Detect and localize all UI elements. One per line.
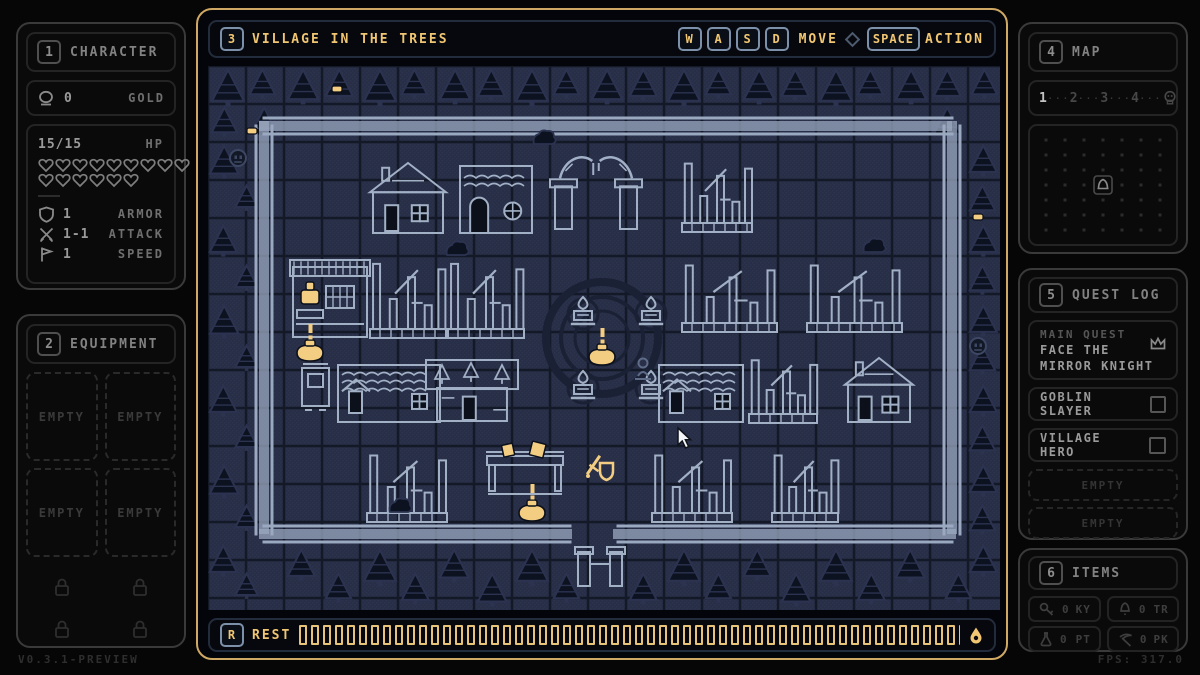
minimap-dot <box>1121 214 1124 217</box>
rest-segment <box>419 625 427 645</box>
main-quest-card[interactable]: MAIN QUEST FACE THE MIRROR KNIGHT <box>1028 320 1178 380</box>
divider <box>38 195 60 197</box>
skull-icon <box>1162 90 1178 106</box>
map-hotkey-badge: 4 <box>1039 40 1063 64</box>
quest-log-title: QUEST LOG <box>1072 288 1160 303</box>
equipment-header: 2 EQUIPMENT <box>26 324 176 364</box>
level-hotkey-badge: 3 <box>220 27 244 51</box>
heart-icon <box>38 158 54 173</box>
minimap-dot <box>1102 199 1105 202</box>
quest-checkbox[interactable] <box>1150 396 1166 413</box>
move-label: MOVE <box>799 32 838 47</box>
crown-icon <box>1149 336 1167 351</box>
minimap-dot <box>1102 138 1105 141</box>
quest-empty-slot: EMPTY <box>1028 469 1178 501</box>
rest-key[interactable]: R <box>220 623 244 647</box>
quest-empty-slot: EMPTY <box>1028 507 1178 539</box>
pickaxe-icon <box>1117 631 1134 648</box>
rest-segment <box>515 625 523 645</box>
move-key-w[interactable]: W <box>678 27 702 51</box>
swords-icon <box>38 226 55 243</box>
action-label: ACTION <box>925 32 984 47</box>
rest-segment <box>767 625 775 645</box>
heart-icon <box>174 158 190 173</box>
rest-segment <box>599 625 607 645</box>
minimap-dot <box>1121 184 1124 187</box>
rest-segment <box>743 625 751 645</box>
minimap-dot <box>1044 168 1047 171</box>
rest-segment <box>467 625 475 645</box>
minimap-dot <box>1159 214 1162 217</box>
locked-slot <box>26 611 98 647</box>
rest-segment <box>875 625 883 645</box>
minimap-dot <box>1082 229 1085 232</box>
items-grid: 0KY 0TR 0PT 0PK <box>1028 596 1178 652</box>
heart-icon <box>72 158 88 173</box>
quest-item[interactable]: VILLAGE HERO <box>1028 428 1178 462</box>
rest-segment <box>443 625 451 645</box>
heart-icon <box>140 158 156 173</box>
rest-segment <box>719 625 727 645</box>
character-header: 1 CHARACTER <box>26 32 176 72</box>
minimap-dot <box>1102 214 1105 217</box>
item-slot[interactable]: 0KY <box>1028 596 1101 622</box>
minimap-dot <box>1063 184 1066 187</box>
minimap-dot <box>1102 153 1105 156</box>
rest-segment <box>539 625 547 645</box>
main-quest-tag: MAIN QUEST <box>1040 328 1126 341</box>
stats-box: 15/15 HP 1ARMOR 1-1ATTACK 1SPEED <box>26 124 176 284</box>
quest-item[interactable]: GOBLIN SLAYER <box>1028 387 1178 421</box>
minimap-dot <box>1044 184 1047 187</box>
shield-icon <box>38 206 55 223</box>
rest-segment <box>575 625 583 645</box>
rest-segment <box>683 625 691 645</box>
minimap-dot <box>1159 199 1162 202</box>
minimap-dot <box>1044 229 1047 232</box>
rest-segment <box>803 625 811 645</box>
rest-segment <box>347 625 355 645</box>
heart-icon <box>89 173 105 188</box>
minimap-dot <box>1044 199 1047 202</box>
items-hotkey-badge: 6 <box>1039 561 1063 585</box>
minimap-dot <box>1044 138 1047 141</box>
gold-coin-icon <box>37 90 55 107</box>
minimap-dot <box>1121 153 1124 156</box>
character-hotkey-badge: 1 <box>37 40 61 64</box>
rest-segment <box>635 625 643 645</box>
rest-segment <box>815 625 823 645</box>
hp-hearts <box>38 158 202 188</box>
village-map-wrap <box>208 66 996 610</box>
hp-value: 15/15 <box>38 137 82 152</box>
heart-icon <box>89 158 105 173</box>
minimap-dot <box>1121 199 1124 202</box>
minimap-dot <box>1063 138 1066 141</box>
lock-icon <box>129 576 151 598</box>
rest-segment <box>395 625 403 645</box>
map-step-separator: ··· <box>1078 92 1101 105</box>
level-header-bar: 3 VILLAGE IN THE TREES WASD MOVE SPACE A… <box>208 20 996 58</box>
heart-icon <box>106 158 122 173</box>
minimap-dot <box>1121 138 1124 141</box>
minimap-dot <box>1044 153 1047 156</box>
equipment-slot[interactable]: EMPTY <box>26 468 98 557</box>
items-title: ITEMS <box>1072 566 1121 581</box>
droplet-icon <box>968 626 984 644</box>
rest-segment <box>311 625 319 645</box>
equipment-slot[interactable]: EMPTY <box>105 372 177 461</box>
rest-segment <box>623 625 631 645</box>
minimap-dot <box>1082 153 1085 156</box>
rest-segment <box>935 625 943 645</box>
equipment-slot[interactable]: EMPTY <box>26 372 98 461</box>
move-key-a[interactable]: A <box>707 27 731 51</box>
quest-empty-slots: EMPTYEMPTY <box>1020 469 1186 539</box>
minimap-dot <box>1140 138 1143 141</box>
locked-slots <box>26 569 176 647</box>
rest-segment <box>695 625 703 645</box>
key-icon <box>1038 601 1056 617</box>
rest-segment <box>887 625 895 645</box>
minimap-dot <box>1121 168 1124 171</box>
rest-segment <box>407 625 415 645</box>
rest-segment <box>791 625 799 645</box>
minimap-dot <box>1082 138 1085 141</box>
rest-segment <box>611 625 619 645</box>
action-key[interactable]: SPACE <box>867 27 920 51</box>
hp-label: HP <box>146 137 164 151</box>
map-step: 1 <box>1039 91 1047 106</box>
stat-row: 1SPEED <box>38 244 164 264</box>
locked-slot <box>105 611 177 647</box>
heart-icon <box>72 173 88 188</box>
rest-segment <box>839 625 847 645</box>
rest-segment <box>371 625 379 645</box>
quest-log-panel: 5 QUEST LOG MAIN QUEST FACE THE MIRROR K… <box>1018 268 1188 540</box>
minimap-dot <box>1159 168 1162 171</box>
map-step-separator: ··· <box>1047 92 1070 105</box>
minimap-dot <box>1082 168 1085 171</box>
map-step-separator: ··· <box>1139 92 1162 105</box>
gold-value: 0 <box>64 91 73 106</box>
bell-icon <box>1117 601 1133 617</box>
minimap-dot <box>1140 153 1143 156</box>
minimap-dot <box>1063 168 1066 171</box>
move-key-d[interactable]: D <box>765 27 789 51</box>
minimap-dots <box>1036 132 1170 238</box>
map-progress: 1 ···2 ···3 ···4 ··· <box>1028 80 1178 116</box>
character-panel: 1 CHARACTER 0 GOLD 15/15 HP 1ARMOR 1-1AT… <box>16 22 186 290</box>
rest-segment <box>863 625 871 645</box>
minimap-dot <box>1159 229 1162 232</box>
rest-segment <box>707 625 715 645</box>
minimap-dot <box>1140 184 1143 187</box>
quest-items: GOBLIN SLAYERVILLAGE HERO <box>1020 387 1186 462</box>
heart-icon <box>157 158 173 173</box>
lock-icon <box>129 618 151 640</box>
fps-label: FPS: 317.0 <box>1098 653 1184 666</box>
rest-segment <box>455 625 463 645</box>
minimap-dot <box>1159 138 1162 141</box>
minimap-dot <box>1140 214 1143 217</box>
rest-segment <box>659 625 667 645</box>
rest-label: REST <box>252 628 291 643</box>
level-panel: 3 VILLAGE IN THE TREES WASD MOVE SPACE A… <box>196 8 1008 660</box>
rest-progress-segments <box>299 623 960 647</box>
map-step-separator: ··· <box>1108 92 1131 105</box>
lock-icon <box>51 576 73 598</box>
minimap-dot <box>1140 229 1143 232</box>
item-slot[interactable]: 0PK <box>1107 626 1179 652</box>
rest-segment <box>563 625 571 645</box>
move-key-s[interactable]: S <box>736 27 760 51</box>
rest-segment <box>359 625 367 645</box>
rest-segment <box>755 625 763 645</box>
minimap-dot <box>1102 168 1105 171</box>
rest-segment <box>731 625 739 645</box>
heart-icon <box>38 173 54 188</box>
rest-segment <box>431 625 439 645</box>
rest-segment <box>299 625 307 645</box>
rest-segment <box>923 625 931 645</box>
minimap-dot <box>1159 184 1162 187</box>
items-panel: 6 ITEMS 0KY 0TR 0PT 0PK <box>1018 548 1188 652</box>
equipment-slots: EMPTYEMPTYEMPTYEMPTY <box>26 372 176 557</box>
rest-segment <box>851 625 859 645</box>
rest-segment <box>959 625 960 645</box>
minimap-dot <box>1082 214 1085 217</box>
main-quest-name-line1: FACE THE <box>1040 343 1110 357</box>
gold-box: 0 GOLD <box>26 80 176 116</box>
rest-segment <box>503 625 511 645</box>
map-header: 4 MAP <box>1028 32 1178 72</box>
rest-segment <box>551 625 559 645</box>
equipment-slot[interactable]: EMPTY <box>105 468 177 557</box>
rest-segment <box>827 625 835 645</box>
minimap-dot <box>1140 199 1143 202</box>
minimap-dot <box>1063 199 1066 202</box>
minimap-dot <box>1063 153 1066 156</box>
character-title: CHARACTER <box>70 45 158 60</box>
heart-icon <box>55 173 71 188</box>
rest-segment <box>587 625 595 645</box>
level-title: VILLAGE IN THE TREES <box>252 32 449 47</box>
game-window: 1 CHARACTER 0 GOLD 15/15 HP 1ARMOR 1-1AT… <box>0 0 1200 675</box>
item-slot[interactable]: 0PT <box>1028 626 1101 652</box>
camp-icon <box>1093 175 1113 195</box>
heart-icon <box>106 173 122 188</box>
rest-segment <box>947 625 955 645</box>
equipment-title: EQUIPMENT <box>70 337 158 352</box>
map-step: 3 <box>1100 91 1108 106</box>
map-title: MAP <box>1072 45 1101 60</box>
minimap-dot <box>1159 153 1162 156</box>
rest-segment <box>647 625 655 645</box>
map-panel: 4 MAP 1 ···2 ···3 ···4 ··· <box>1018 22 1188 254</box>
heart-icon <box>55 158 71 173</box>
rest-segment <box>671 625 679 645</box>
rest-segment <box>335 625 343 645</box>
minimap-dot <box>1063 214 1066 217</box>
rest-segment <box>911 625 919 645</box>
quest-log-hotkey-badge: 5 <box>1039 283 1063 307</box>
rest-segment <box>323 625 331 645</box>
rest-segment <box>779 625 787 645</box>
items-header: 6 ITEMS <box>1028 556 1178 590</box>
minimap-dot <box>1044 214 1047 217</box>
locked-slot <box>105 569 177 605</box>
potion-icon <box>1038 631 1054 648</box>
locked-slot <box>26 569 98 605</box>
heart-icon <box>123 158 139 173</box>
map-step: 2 <box>1070 91 1078 106</box>
diamond-separator-icon <box>845 31 861 47</box>
quest-log-header: 5 QUEST LOG <box>1028 277 1178 313</box>
rest-segment <box>383 625 391 645</box>
minimap-dot <box>1063 229 1066 232</box>
rest-segment <box>899 625 907 645</box>
rest-segment <box>527 625 535 645</box>
equipment-panel: 2 EQUIPMENT EMPTYEMPTYEMPTYEMPTY <box>16 314 186 648</box>
main-quest-name-line2: MIRROR KNIGHT <box>1040 359 1153 373</box>
version-label: V0.3.1-PREVIEW <box>18 653 139 666</box>
flag-icon <box>38 246 55 263</box>
stat-row: 1ARMOR <box>38 204 164 224</box>
map-minimap-box[interactable] <box>1028 124 1178 246</box>
stat-rows: 1ARMOR 1-1ATTACK 1SPEED <box>38 204 164 264</box>
map-step: 4 <box>1131 91 1139 106</box>
minimap-dot <box>1140 168 1143 171</box>
village-map[interactable] <box>208 66 1000 610</box>
equipment-hotkey-badge: 2 <box>37 332 61 356</box>
quest-checkbox[interactable] <box>1149 437 1166 454</box>
minimap-dot <box>1082 184 1085 187</box>
rest-segment <box>491 625 499 645</box>
minimap-dot <box>1121 229 1124 232</box>
lock-icon <box>51 618 73 640</box>
move-keys: WASD <box>678 27 789 51</box>
minimap-dot <box>1082 199 1085 202</box>
item-slot[interactable]: 0TR <box>1107 596 1179 622</box>
stat-row: 1-1ATTACK <box>38 224 164 244</box>
minimap-dot <box>1102 229 1105 232</box>
rest-bar[interactable]: R REST <box>208 618 996 652</box>
rest-segment <box>479 625 487 645</box>
heart-icon <box>123 173 139 188</box>
gold-label: GOLD <box>128 91 165 105</box>
